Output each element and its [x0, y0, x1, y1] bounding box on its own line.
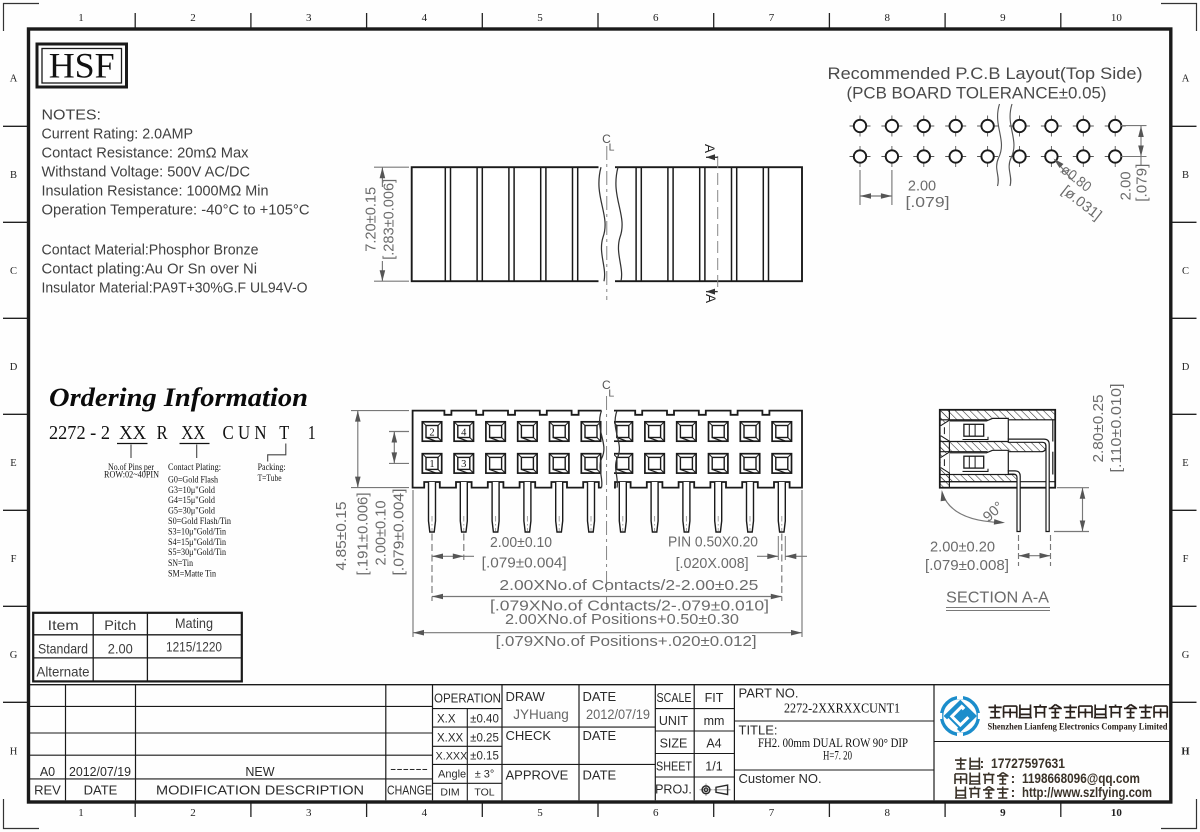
svg-text:CHANGE: CHANGE	[387, 784, 432, 798]
svg-text:±0.25: ±0.25	[470, 733, 499, 745]
svg-text:Insulator Material:PA9T+30%G.F: Insulator Material:PA9T+30%G.F UL94V-O	[42, 280, 308, 297]
svg-text:±0.15: ±0.15	[470, 751, 499, 763]
svg-text:± 3°: ± 3°	[475, 769, 495, 781]
svg-text:X.XX: X.XX	[437, 733, 464, 745]
svg-text:Contact Material:Phosphor Bron: Contact Material:Phosphor Bronze	[42, 242, 259, 259]
svg-text:1: 1	[78, 807, 84, 819]
svg-text:[.283±0.006]: [.283±0.006]	[381, 179, 397, 260]
svg-text:A0: A0	[40, 765, 55, 779]
svg-text:1: 1	[78, 12, 84, 24]
svg-text:2.00XNo.of Positions+0.50±0.30: 2.00XNo.of Positions+0.50±0.30	[505, 612, 739, 628]
svg-text:10: 10	[1111, 12, 1123, 24]
svg-text:NEW: NEW	[245, 765, 274, 779]
svg-text:17727597631: 17727597631	[991, 755, 1065, 771]
svg-text:G3=10μ"Gold: G3=10μ"Gold	[168, 485, 215, 495]
svg-text:6: 6	[653, 807, 659, 819]
svg-text:XX: XX	[181, 422, 205, 444]
svg-text:(PCB BOARD TOLERANCE±0.05): (PCB BOARD TOLERANCE±0.05)	[847, 85, 1107, 103]
svg-text:9: 9	[1000, 12, 1006, 24]
svg-text:C U N: C U N	[223, 422, 267, 444]
svg-text:5: 5	[537, 807, 543, 819]
svg-text:4: 4	[422, 12, 428, 24]
svg-text:3: 3	[306, 12, 312, 24]
svg-text:Withstand Voltage: 500V AC/DC: Withstand Voltage: 500V AC/DC	[42, 164, 251, 181]
svg-text:2.00±0.10: 2.00±0.10	[374, 501, 390, 566]
svg-text:DRAW: DRAW	[506, 689, 546, 704]
svg-text:MODIFICATION DESCRIPTION: MODIFICATION DESCRIPTION	[156, 784, 364, 798]
svg-text:[.020X.008]: [.020X.008]	[676, 556, 749, 572]
svg-text:SM=Matte Tin: SM=Matte Tin	[168, 569, 216, 579]
svg-text:mm: mm	[704, 714, 725, 728]
svg-text:4: 4	[422, 807, 428, 819]
svg-text:Packing:: Packing:	[258, 462, 286, 472]
svg-text:L: L	[608, 388, 614, 400]
svg-text:F: F	[1183, 554, 1189, 565]
svg-text:2.00: 2.00	[1119, 171, 1135, 200]
svg-text:[.079±0.004]: [.079±0.004]	[392, 489, 408, 576]
svg-text:Standard: Standard	[38, 641, 88, 657]
svg-text:R: R	[157, 422, 169, 444]
svg-text:E: E	[1182, 458, 1188, 469]
svg-text:7: 7	[769, 12, 775, 24]
svg-text:8: 8	[884, 12, 890, 24]
svg-text:G0=Gold Flash: G0=Gold Flash	[168, 475, 218, 485]
svg-text:Ordering Information: Ordering Information	[49, 383, 308, 412]
svg-text:HSF: HSF	[49, 46, 115, 86]
svg-text:1: 1	[308, 422, 316, 444]
svg-text:10: 10	[1111, 807, 1123, 819]
svg-text:S4=15μ"Gold/Tin: S4=15μ"Gold/Tin	[168, 537, 226, 547]
svg-text:7: 7	[769, 807, 775, 819]
svg-text:OPERATION: OPERATION	[434, 691, 501, 706]
svg-text:[.079]: [.079]	[1134, 164, 1150, 202]
svg-text:3: 3	[306, 807, 312, 819]
svg-text:PROJ.: PROJ.	[655, 783, 692, 797]
svg-text:APPROVE: APPROVE	[506, 768, 569, 783]
svg-text:Angle: Angle	[438, 769, 466, 781]
svg-text:D: D	[10, 362, 18, 373]
svg-text:4.85±0.15: 4.85±0.15	[334, 502, 350, 571]
svg-text:8: 8	[884, 807, 890, 819]
svg-text::: :	[1011, 784, 1016, 800]
svg-text:ROW:02~40PIN: ROW:02~40PIN	[104, 469, 159, 479]
svg-text:X.XXX: X.XXX	[436, 751, 468, 763]
svg-text:9: 9	[1000, 807, 1006, 819]
svg-text:Contact Resistance: 20mΩ Max: Contact Resistance: 20mΩ Max	[42, 145, 249, 162]
svg-text:FIT: FIT	[705, 691, 724, 705]
svg-text:Item: Item	[48, 617, 79, 633]
svg-text:A: A	[702, 144, 717, 153]
svg-text:T=Tube: T=Tube	[258, 473, 282, 483]
svg-text:2.00: 2.00	[908, 179, 936, 195]
svg-text:E: E	[10, 458, 16, 469]
svg-text:2: 2	[190, 807, 196, 819]
svg-text:G5=30μ"Gold: G5=30μ"Gold	[168, 506, 215, 516]
svg-text:[.110±0.010]: [.110±0.010]	[1109, 384, 1125, 473]
svg-text:UNIT: UNIT	[659, 714, 689, 728]
svg-text:[.079±0.008]: [.079±0.008]	[925, 557, 1009, 574]
svg-text:2.00±0.20: 2.00±0.20	[930, 539, 995, 556]
svg-text:PIN 0.50X0.20: PIN 0.50X0.20	[668, 535, 758, 551]
svg-text:A: A	[703, 294, 718, 303]
svg-text:NOTES:: NOTES:	[42, 107, 102, 124]
svg-text:2.00±0.10: 2.00±0.10	[490, 535, 552, 551]
svg-text:2272 - 2: 2272 - 2	[49, 422, 110, 444]
svg-text:Contact plating:Au Or Sn over: Contact plating:Au Or Sn over Ni	[42, 261, 258, 278]
svg-text:1: 1	[429, 459, 434, 470]
svg-text:XX: XX	[119, 422, 147, 444]
svg-text:G: G	[1182, 650, 1190, 661]
svg-text:JYHuang: JYHuang	[513, 707, 569, 722]
svg-text:Contact Plating:: Contact Plating:	[168, 462, 221, 472]
svg-text:±0.40: ±0.40	[470, 714, 499, 726]
svg-text:6: 6	[653, 12, 659, 24]
svg-text:------: ------	[390, 761, 428, 776]
svg-text:2012/07/19: 2012/07/19	[69, 765, 131, 779]
svg-text:Recommended P.C.B Layout(Top S: Recommended P.C.B Layout(Top Side)	[828, 65, 1143, 83]
svg-text:[.191±0.006]: [.191±0.006]	[356, 493, 372, 576]
svg-text:F: F	[11, 554, 17, 565]
svg-text:A: A	[10, 74, 18, 85]
svg-text:A: A	[1182, 74, 1190, 85]
svg-text:S0=Gold Flash/Tin: S0=Gold Flash/Tin	[168, 516, 231, 526]
svg-text:[.079]: [.079]	[906, 195, 950, 211]
svg-text:D: D	[1182, 362, 1190, 373]
svg-text:S3=10μ"Gold/Tin: S3=10μ"Gold/Tin	[168, 527, 226, 537]
svg-text:Shenzhen Lianfeng Electronics: Shenzhen Lianfeng Electronics Company Li…	[988, 723, 1169, 733]
svg-text:http://www.szlfying.com: http://www.szlfying.com	[1022, 784, 1152, 800]
svg-text:C: C	[10, 266, 17, 277]
svg-text:Insulation Resistance: 1000MΩ: Insulation Resistance: 1000MΩ Min	[42, 183, 269, 200]
svg-text:Pitch: Pitch	[104, 617, 136, 633]
svg-text:Alternate: Alternate	[37, 664, 90, 680]
svg-text:2.00XNo.of Contacts/2-2.00±0.2: 2.00XNo.of Contacts/2-2.00±0.25	[499, 578, 758, 594]
svg-text:2.00: 2.00	[108, 641, 133, 657]
svg-text:PART NO.: PART NO.	[739, 686, 799, 701]
svg-text:DATE: DATE	[583, 728, 617, 743]
svg-text:H: H	[10, 747, 18, 758]
svg-text:2.80±0.25: 2.80±0.25	[1091, 395, 1107, 463]
svg-text:S5=30μ"Gold/Tin: S5=30μ"Gold/Tin	[168, 547, 226, 557]
svg-text:T: T	[279, 422, 289, 444]
svg-text:[.079±0.004]: [.079±0.004]	[482, 556, 567, 572]
svg-text:G4=15μ"Gold: G4=15μ"Gold	[168, 495, 215, 505]
svg-text:DIM: DIM	[440, 787, 459, 799]
svg-text:SHEET: SHEET	[656, 760, 692, 774]
svg-text:Customer NO.: Customer NO.	[739, 771, 822, 786]
svg-text:SECTION A-A: SECTION A-A	[946, 590, 1050, 607]
svg-text:L: L	[609, 142, 615, 154]
svg-text:Operation Temperature: -40°C t: Operation Temperature: -40°C to +105°C	[42, 202, 310, 219]
svg-text::: :	[980, 755, 985, 771]
svg-text:REV: REV	[34, 783, 61, 798]
svg-text:2: 2	[190, 12, 196, 24]
svg-text:1215/1220: 1215/1220	[166, 639, 222, 655]
svg-text:4: 4	[461, 427, 467, 438]
svg-text:1/1: 1/1	[705, 760, 722, 774]
svg-text:Current Rating: 2.0AMP: Current Rating: 2.0AMP	[42, 126, 194, 143]
svg-text:TOL: TOL	[474, 787, 494, 799]
svg-text:SIZE: SIZE	[660, 737, 688, 751]
svg-text:B: B	[1182, 170, 1189, 181]
svg-text:3: 3	[461, 459, 466, 470]
svg-text:Mating: Mating	[175, 615, 213, 631]
svg-text:A4: A4	[706, 737, 721, 751]
svg-text:2: 2	[429, 427, 434, 438]
svg-text:DATE: DATE	[583, 689, 617, 704]
svg-text:7.20±0.15: 7.20±0.15	[363, 187, 379, 252]
svg-text:SN=Tin: SN=Tin	[168, 558, 193, 568]
svg-text:H=7. 20: H=7. 20	[823, 749, 852, 763]
svg-text:2272-2XXRXXCUNT1: 2272-2XXRXXCUNT1	[784, 702, 900, 717]
svg-text:X.X: X.X	[437, 714, 456, 726]
svg-text:H: H	[1181, 747, 1189, 758]
svg-text:[.079XNo.of Positions+.020±0.0: [.079XNo.of Positions+.020±0.012]	[496, 634, 757, 650]
svg-text:DATE: DATE	[583, 768, 617, 783]
svg-text:C: C	[1182, 266, 1189, 277]
svg-text:G: G	[10, 650, 18, 661]
svg-text:SCALE: SCALE	[657, 691, 692, 705]
svg-text:2012/07/19: 2012/07/19	[586, 707, 650, 722]
svg-text:CHECK: CHECK	[506, 728, 552, 743]
svg-text:5: 5	[537, 12, 543, 24]
svg-text:DATE: DATE	[84, 783, 118, 798]
svg-text:B: B	[10, 170, 17, 181]
